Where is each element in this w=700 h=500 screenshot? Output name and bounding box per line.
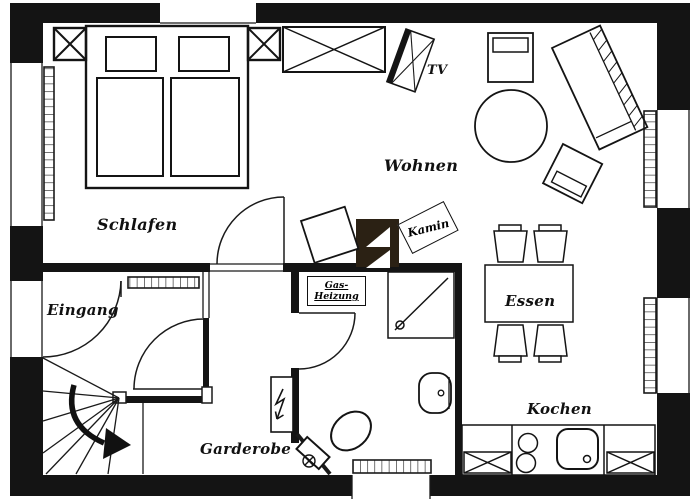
room-label-essen: Essen	[505, 292, 555, 310]
door-bedroom	[217, 197, 284, 264]
radiator	[644, 298, 656, 393]
wall-eingang-garderobe	[203, 318, 209, 390]
wall-bath-west-upper	[291, 263, 299, 313]
pillow	[106, 37, 156, 71]
dining-chair	[494, 325, 527, 362]
floor-plan-drawing	[0, 0, 700, 500]
stove-burners	[517, 434, 538, 473]
wall-top-right	[256, 3, 690, 23]
room-label-kochen: Kochen	[527, 400, 592, 418]
tv-unit	[387, 29, 434, 92]
door-entrance	[43, 281, 121, 357]
wall-bottom-right	[430, 475, 690, 496]
mattress	[97, 78, 163, 176]
base-cabinet	[607, 452, 654, 473]
wall-left-mid	[10, 226, 43, 281]
chimney	[356, 219, 399, 268]
wall-right-mid	[657, 208, 690, 298]
wall-right-upper	[657, 3, 690, 110]
washbasin	[419, 373, 451, 413]
kitchen-counter	[462, 425, 655, 475]
label-kamin: Kamin	[406, 216, 450, 240]
label-gas-line1: Gas-	[325, 280, 349, 291]
wardrobe	[283, 27, 385, 72]
label-tv: TV	[427, 63, 447, 78]
lounge-chair	[543, 144, 602, 203]
room-label-eingang: Eingang	[47, 301, 119, 319]
gas-heating-unit: Gas- Heizung	[307, 276, 366, 306]
label-gas-line2: Heizung	[314, 291, 358, 302]
base-cabinet	[464, 452, 511, 473]
room-label-wohnen: Wohnen	[384, 156, 458, 175]
shaft-box	[54, 28, 86, 60]
floor-plan: Schlafen Wohnen Eingang Garderobe Essen …	[0, 0, 700, 500]
mattress	[171, 78, 239, 176]
pillow	[179, 37, 229, 71]
side-chair	[301, 207, 358, 263]
wall-bath-kitchen	[455, 263, 462, 475]
sofa	[552, 26, 647, 150]
wall-bottom-left	[10, 475, 352, 496]
electrical-panel	[271, 377, 293, 432]
bed-frame	[86, 26, 248, 188]
stair-partition	[123, 396, 203, 403]
radiator	[128, 277, 199, 288]
wall-left-upper	[10, 3, 43, 63]
kitchen-sink	[557, 429, 598, 469]
shaft-box	[248, 28, 280, 60]
room-label-schlafen: Schlafen	[97, 215, 177, 234]
dining-chair	[494, 225, 527, 262]
shower	[388, 272, 454, 338]
toilet	[296, 404, 378, 469]
dining-chair	[534, 325, 567, 362]
door-hinge-block	[202, 387, 212, 403]
armchair	[488, 33, 533, 82]
radiator	[353, 460, 431, 473]
wall-bedroom-south	[42, 263, 210, 272]
double-bed	[86, 26, 248, 188]
room-label-garderobe: Garderobe	[200, 440, 291, 458]
round-table	[475, 90, 547, 162]
door-garderobe	[133, 319, 204, 389]
radiator	[44, 67, 54, 220]
dining-chair	[534, 225, 567, 262]
door-bath-inner	[299, 313, 355, 369]
